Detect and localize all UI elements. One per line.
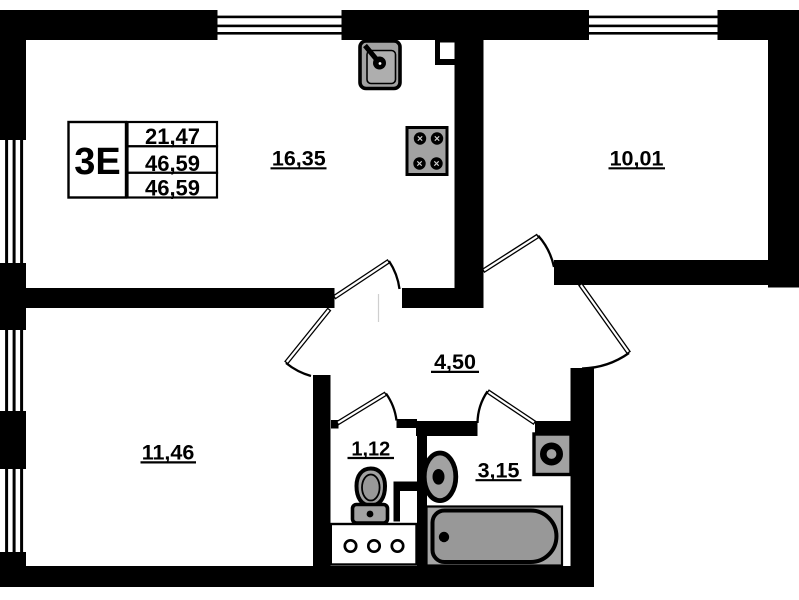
svg-text:21,47: 21,47 (145, 124, 200, 149)
svg-text:11,46: 11,46 (142, 441, 195, 465)
svg-text:3Е: 3Е (74, 141, 120, 183)
svg-text:16,35: 16,35 (272, 146, 326, 170)
svg-text:4,50: 4,50 (434, 350, 476, 374)
svg-text:46,59: 46,59 (145, 176, 200, 201)
svg-text:10,01: 10,01 (610, 146, 664, 170)
svg-text:3,15: 3,15 (478, 458, 520, 482)
svg-text:46,59: 46,59 (145, 151, 200, 176)
